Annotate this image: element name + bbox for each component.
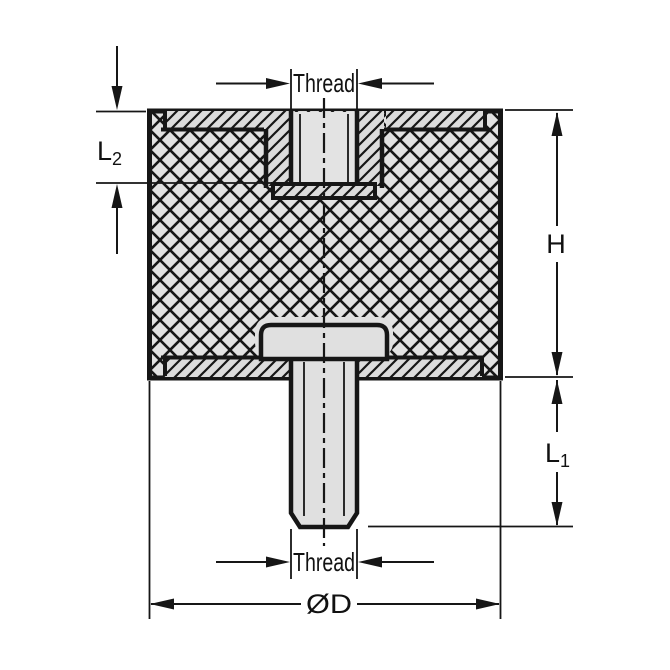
dimension-l1: L 1	[368, 380, 573, 527]
arrowhead-up-icon	[552, 112, 563, 136]
dimension-l2: L 2	[96, 46, 146, 254]
l1-label: L	[545, 438, 560, 468]
engineering-drawing-canvas: Thread L 2 H L 1	[0, 0, 670, 670]
arrowhead-left-icon	[150, 599, 174, 610]
thread-bottom-label: Thread	[293, 547, 355, 577]
l2-label-subscript: 2	[112, 149, 122, 169]
arrowhead-down-icon	[112, 86, 123, 110]
arrowhead-right-icon	[266, 557, 290, 568]
od-label: ØD	[306, 589, 352, 619]
arrowhead-right-icon	[266, 78, 290, 89]
arrowhead-up-icon	[552, 380, 563, 404]
thread-top-label: Thread	[293, 68, 355, 98]
l2-label: L	[97, 136, 112, 166]
mount-body	[96, 98, 501, 546]
rubber-mount-section-drawing: Thread L 2 H L 1	[0, 0, 670, 670]
arrowhead-left-icon	[358, 557, 382, 568]
arrowhead-down-icon	[552, 502, 563, 526]
dimension-h: H	[505, 110, 573, 377]
arrowhead-right-icon	[476, 599, 500, 610]
top-plate-right	[386, 111, 487, 130]
arrowhead-left-icon	[358, 78, 382, 89]
arrowhead-down-icon	[552, 352, 563, 376]
arrowhead-up-icon	[112, 184, 123, 208]
top-plate-left	[163, 111, 264, 130]
l1-label-subscript: 1	[560, 451, 570, 471]
h-label: H	[546, 229, 566, 259]
